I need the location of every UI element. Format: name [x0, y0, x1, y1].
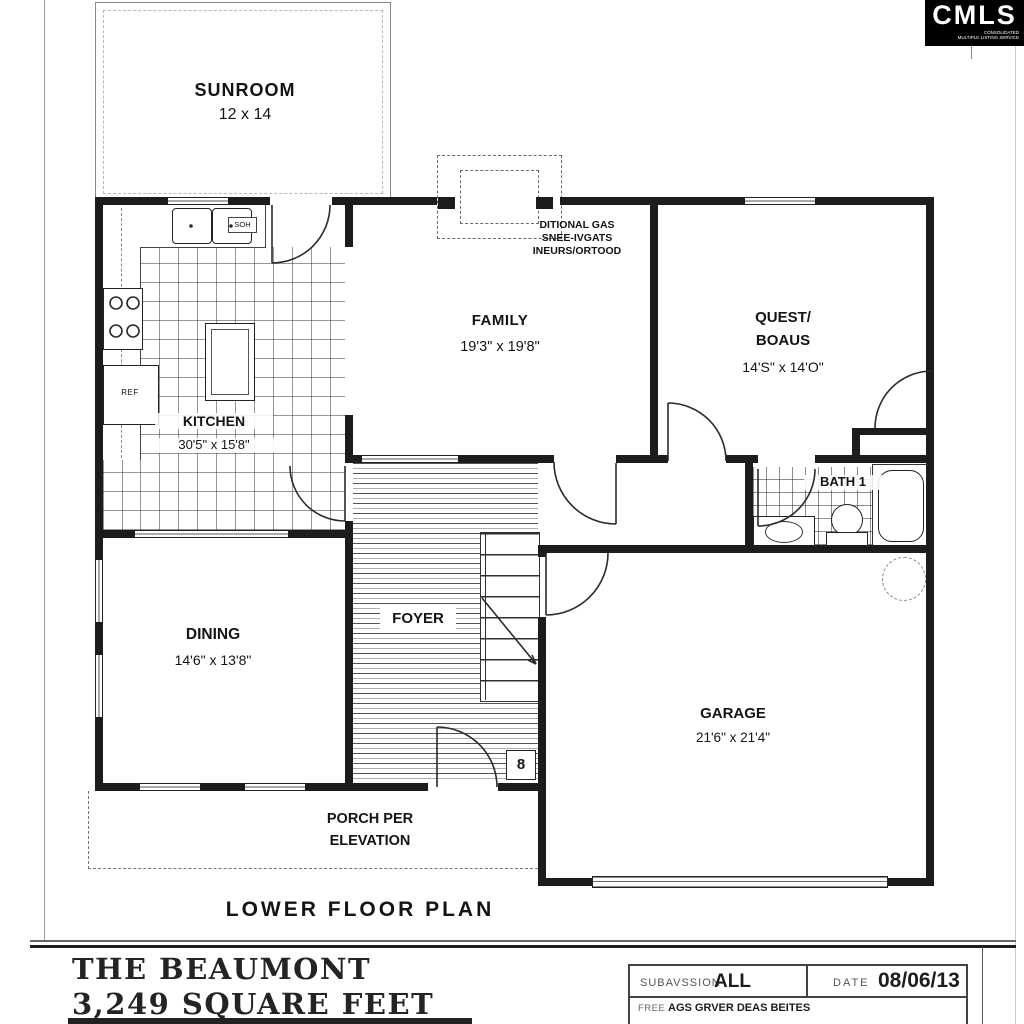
bathtub — [878, 470, 924, 542]
table-divider-vertical — [806, 964, 808, 997]
garage-door — [592, 876, 888, 888]
kitchen-sink-left — [172, 208, 212, 244]
footer-separator-line-1 — [30, 940, 1016, 942]
subdivision-label: SUBAVSSION — [640, 977, 721, 989]
window — [168, 197, 228, 205]
wall — [538, 878, 592, 886]
family-label: FAMILY — [430, 312, 570, 329]
window — [745, 197, 815, 205]
staircase — [480, 532, 540, 702]
fireplace-wall-stub-left — [438, 197, 455, 209]
date-value: 08/06/13 — [878, 969, 960, 993]
wall — [95, 530, 135, 538]
table-border-right — [966, 964, 968, 1024]
wall — [886, 878, 934, 886]
square-feet: 3,249 SQUARE FEET — [72, 987, 434, 1021]
bath-label: BATH 1 — [804, 475, 882, 490]
kitchen-tile-floor-left — [103, 460, 140, 530]
sunroom-dashed-wall — [103, 10, 383, 194]
table-border-top — [628, 964, 967, 966]
footer-separator-line-2 — [30, 945, 1016, 948]
cmls-logo-text: CMLS — [925, 0, 1024, 30]
wall — [538, 545, 934, 553]
wall — [95, 783, 140, 791]
area-label: FREE — [638, 1003, 665, 1014]
wall — [815, 197, 934, 205]
subdivision-value: ALL — [714, 971, 751, 993]
wall — [538, 617, 546, 886]
wall — [926, 197, 934, 886]
closet-wall — [852, 428, 860, 463]
wall — [345, 415, 353, 463]
porch-label-1: PORCH PER — [305, 811, 435, 828]
wall — [288, 530, 345, 538]
wall — [345, 197, 353, 247]
dining-dims: 14'6" x 13'8" — [145, 652, 281, 668]
guest-label-1: QUEST/ — [723, 309, 843, 326]
plan-title: LOWER FLOOR PLAN — [210, 898, 510, 922]
refrigerator-label: REF — [103, 388, 157, 397]
wall — [305, 783, 428, 791]
garage-dims: 21'6" x 21'4" — [668, 730, 798, 746]
wall — [650, 197, 658, 463]
floor-plan-sheet: CMLS CONSOLIDATED MULTIPLE LISTING SERVI… — [0, 0, 1024, 1024]
sunroom-label: SUNROOM — [150, 80, 340, 101]
gas-note-1: DITIONAL GAS — [520, 219, 634, 231]
sunroom-dims: 12 x 14 — [150, 106, 340, 124]
garage-label: GARAGE — [673, 705, 793, 722]
wall — [228, 197, 270, 205]
wall — [95, 197, 168, 205]
vanity-sink — [765, 521, 803, 543]
guest-label-2: BOAUS — [723, 332, 843, 349]
optional-fireplace-inner — [460, 170, 539, 224]
window — [140, 783, 200, 791]
wall — [95, 622, 103, 655]
cmls-tagline-2: MULTIPLE LISTING SERVICE — [925, 35, 1024, 40]
cmls-logo: CMLS CONSOLIDATED MULTIPLE LISTING SERVI… — [925, 0, 1024, 46]
wall — [726, 455, 758, 463]
wall — [458, 455, 554, 463]
foyer-label: FOYER — [380, 608, 456, 629]
window — [245, 783, 305, 791]
fireplace-wall-stub-right — [536, 197, 553, 209]
wall — [745, 463, 753, 545]
logo-tick-line — [971, 46, 972, 59]
wall — [815, 455, 934, 463]
table-border-left — [628, 964, 630, 1024]
family-dims: 19'3" x 19'8" — [420, 339, 580, 356]
wall — [95, 717, 103, 791]
footer-right-edge-line — [982, 947, 983, 1024]
guest-dims: 14'S" x 14'O" — [713, 359, 853, 375]
window — [95, 655, 103, 717]
area-value: AGS GRVER DEAS BEITES — [668, 1002, 810, 1014]
cased-opening — [362, 455, 458, 463]
wall — [616, 455, 668, 463]
sunroom-wall-right — [390, 2, 391, 198]
stair-landing-box: 8 — [506, 750, 536, 780]
left-margin-line — [44, 0, 45, 941]
gas-note-3: INEURS/ORTOOD — [514, 245, 640, 257]
right-margin-line — [1015, 0, 1016, 1024]
sunroom-wall-left — [95, 2, 96, 198]
counter-appliance-label: SOH — [228, 217, 257, 233]
model-name: THE BEAUMONT — [72, 952, 371, 986]
kitchen-dims: 30'5" x 15'8" — [150, 438, 278, 453]
wall — [200, 783, 245, 791]
porch-label-2: ELEVATION — [305, 833, 435, 850]
wall — [345, 521, 353, 783]
porch-dashed-outline — [88, 791, 538, 869]
window — [95, 560, 103, 622]
range-cooktop — [103, 288, 143, 350]
cased-opening — [135, 530, 288, 538]
date-label: DATE — [833, 977, 870, 989]
wall — [538, 545, 546, 557]
kitchen-island-inner — [211, 329, 249, 395]
sunroom-wall-top — [95, 2, 391, 3]
table-divider-horizontal — [628, 996, 967, 998]
stair-rail-line — [485, 532, 486, 700]
kitchen-label: KITCHEN — [155, 413, 273, 429]
wall — [95, 197, 103, 560]
dining-label: DINING — [152, 626, 274, 644]
water-heater-dashed-circle — [882, 557, 926, 601]
closet-wall — [852, 428, 934, 435]
gas-note-2: SNEE-IVGATS — [520, 232, 634, 244]
